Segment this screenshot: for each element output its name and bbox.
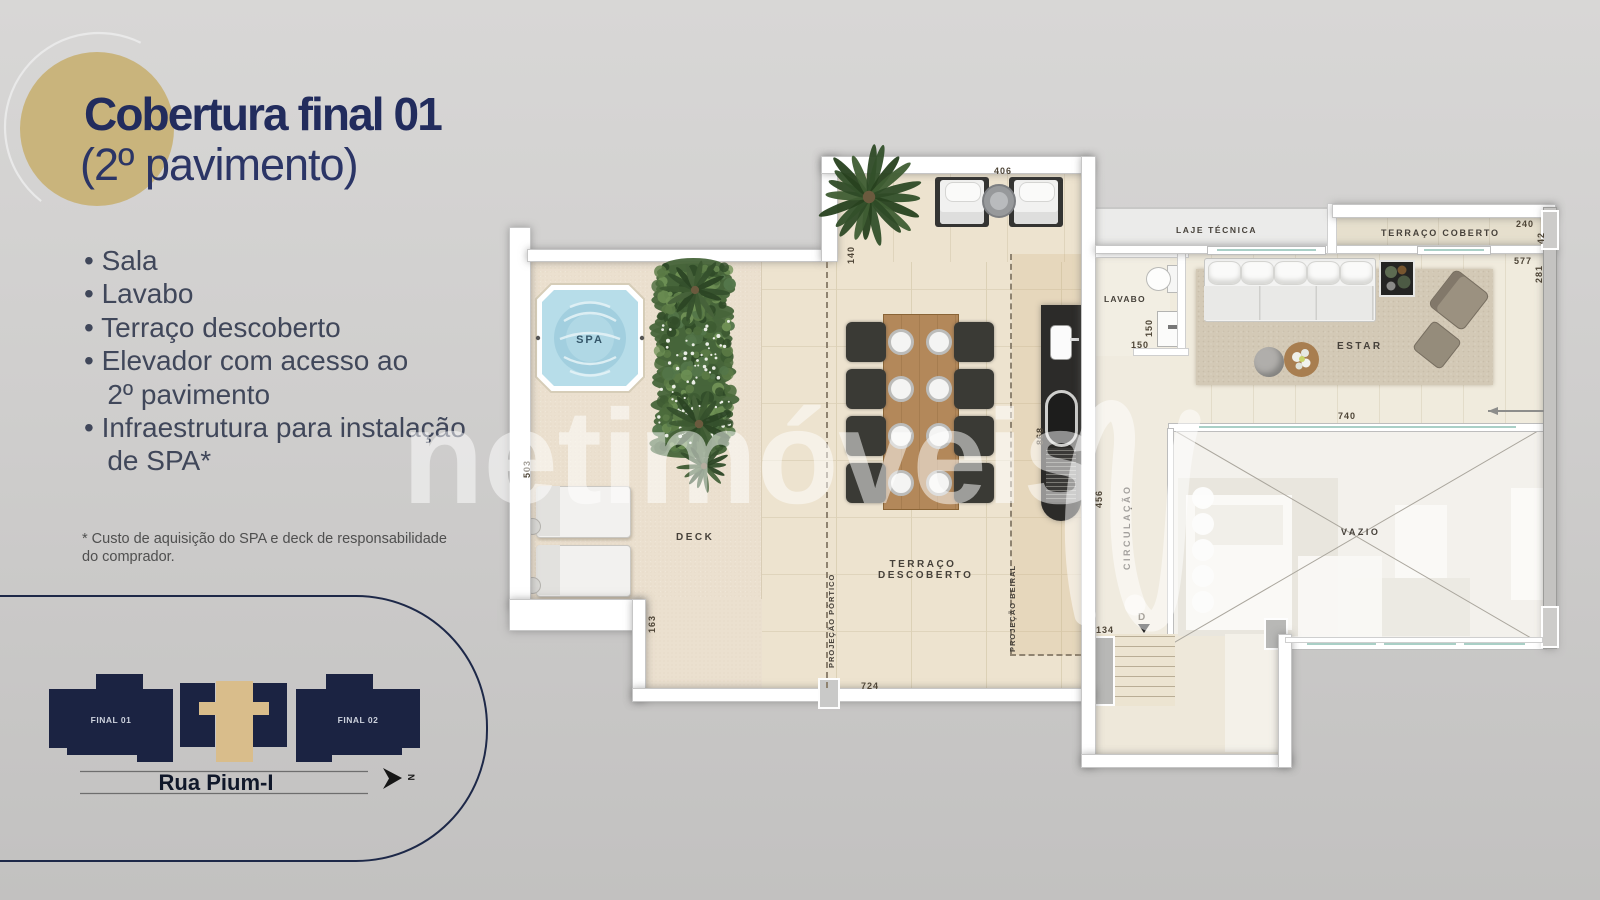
svg-text:FINAL 01: FINAL 01 xyxy=(91,715,132,725)
svg-text:N: N xyxy=(406,774,416,781)
svg-text:FINAL 02: FINAL 02 xyxy=(338,715,379,725)
svg-text:SPA: SPA xyxy=(576,334,604,346)
svg-text:Rua Pium-I: Rua Pium-I xyxy=(159,770,274,795)
